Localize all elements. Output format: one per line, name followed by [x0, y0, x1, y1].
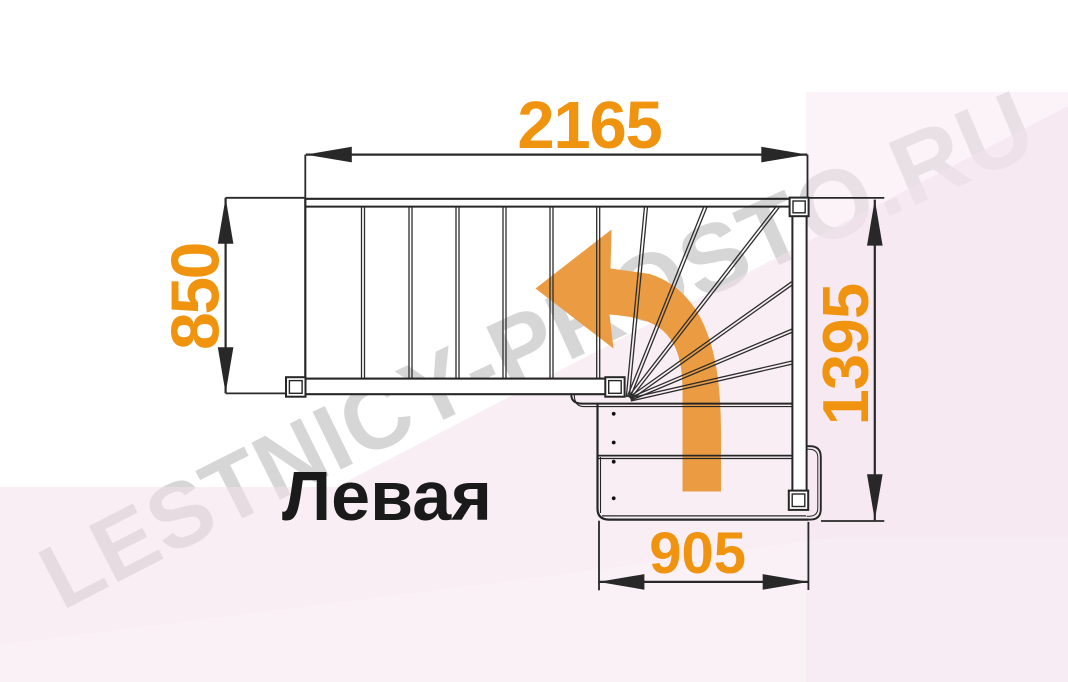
svg-text:1395: 1395	[809, 284, 882, 426]
svg-text:905: 905	[649, 521, 746, 586]
svg-text:2165: 2165	[517, 88, 661, 163]
svg-text:850: 850	[158, 243, 234, 350]
svg-text:Левая: Левая	[282, 457, 492, 535]
